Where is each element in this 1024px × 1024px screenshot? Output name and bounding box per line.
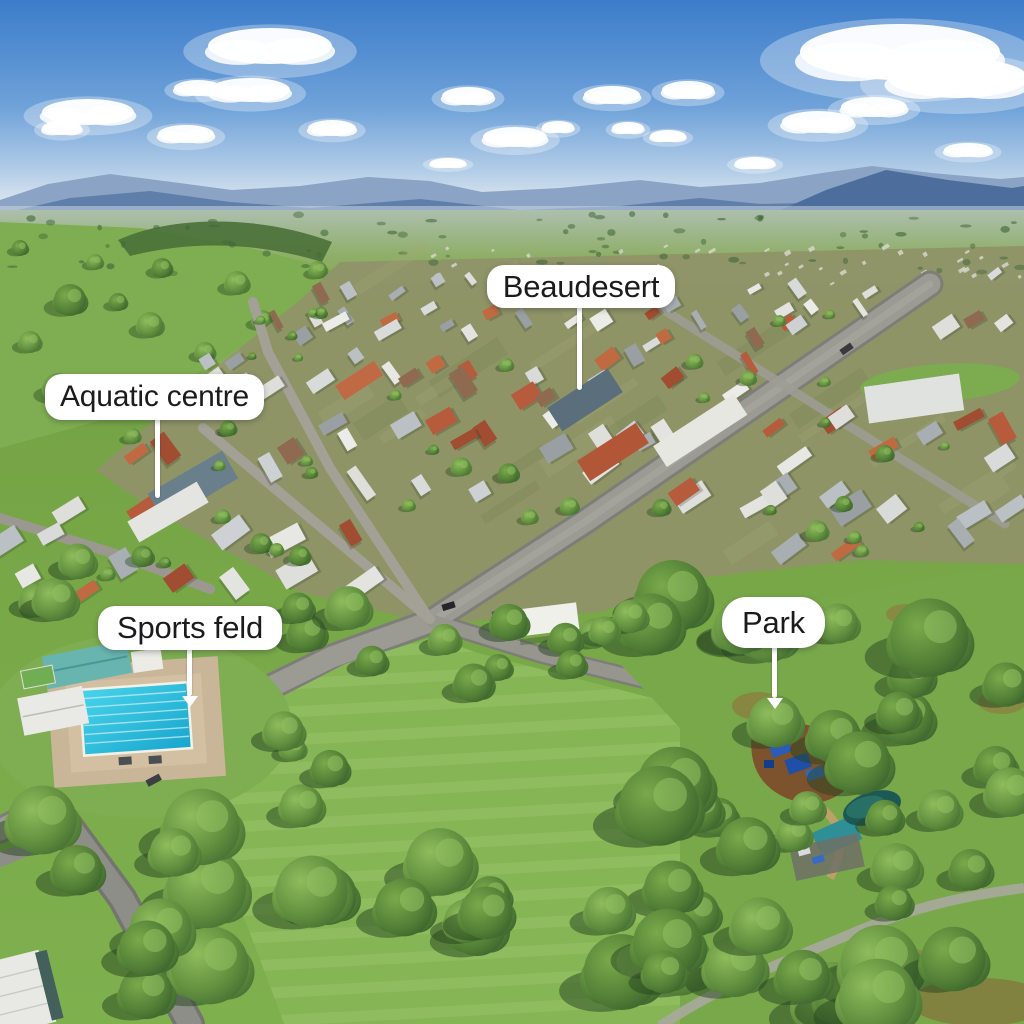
label-beaudesert: Beaudesert	[487, 265, 675, 308]
label-park-text: Park	[742, 605, 805, 641]
label-aquatic-centre: Aquatic centre	[45, 374, 264, 420]
aquatic-centre-pointer-line	[155, 416, 160, 498]
label-beaudesert-text: Beaudesert	[503, 269, 660, 305]
park-pointer-line	[772, 644, 777, 698]
aerial-screenshot: Beaudesert Aquatic centre Sports feld Pa…	[0, 0, 1024, 1024]
label-sports-field: Sports feld	[98, 606, 282, 650]
label-sports-field-text: Sports feld	[117, 610, 263, 646]
label-aquatic-centre-text: Aquatic centre	[60, 380, 249, 414]
label-park: Park	[722, 597, 825, 648]
beaudesert-pointer-line	[577, 304, 582, 390]
sports-field-pointer-line	[187, 646, 192, 696]
aerial-photo	[0, 0, 1024, 1024]
